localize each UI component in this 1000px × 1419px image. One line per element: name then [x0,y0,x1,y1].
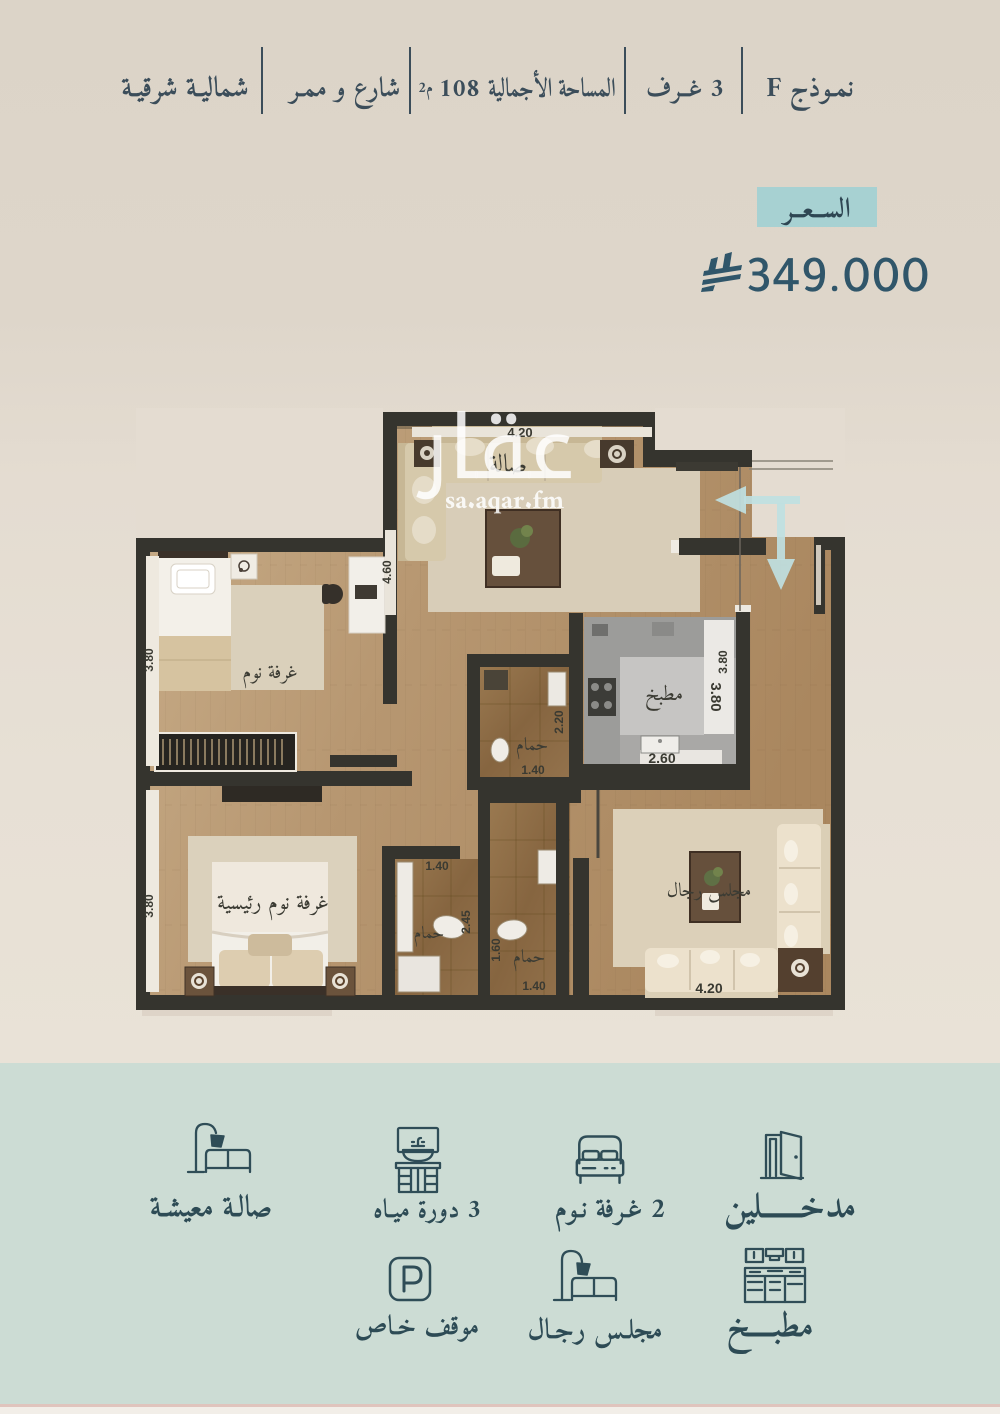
svg-text:2.45: 2.45 [459,910,473,934]
svg-text:1.40: 1.40 [522,979,546,993]
svg-text:3.80: 3.80 [707,682,724,711]
svg-text:2.60: 2.60 [648,750,675,766]
svg-text:4.20: 4.20 [695,980,722,996]
svg-text:3.80: 3.80 [142,894,156,918]
svg-text:1.40: 1.40 [425,859,449,873]
svg-text:1.60: 1.60 [489,938,503,962]
svg-text:1.40: 1.40 [521,763,545,777]
svg-text:3.80: 3.80 [716,650,730,674]
svg-text:3.80: 3.80 [142,648,156,672]
svg-text:2.20: 2.20 [552,710,566,734]
svg-text:4.60: 4.60 [380,560,394,584]
